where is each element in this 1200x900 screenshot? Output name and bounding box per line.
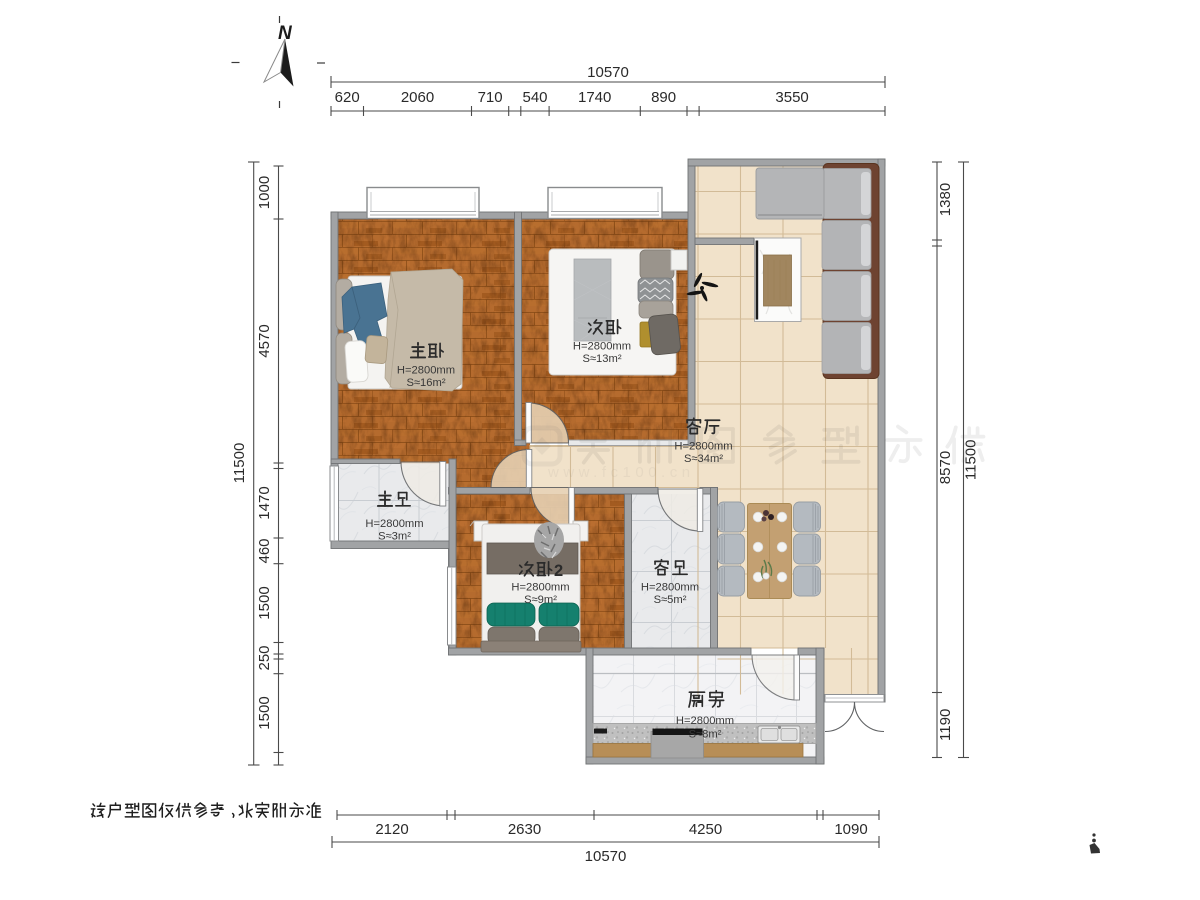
svg-text:www.fc100.cn: www.fc100.cn [547, 464, 695, 481]
svg-text:460: 460 [256, 538, 273, 563]
svg-text:8570: 8570 [937, 451, 954, 484]
svg-text:H=2800mm: H=2800mm [676, 715, 734, 727]
svg-text:S≈9m²: S≈9m² [524, 594, 557, 606]
svg-text:1090: 1090 [834, 821, 867, 838]
svg-text:S≈13m²: S≈13m² [582, 353, 621, 365]
svg-text:S≈16m²: S≈16m² [406, 377, 445, 389]
svg-text:H=2800mm: H=2800mm [397, 365, 455, 377]
svg-text:4250: 4250 [689, 821, 722, 838]
svg-text:S≈5m²: S≈5m² [654, 594, 687, 606]
svg-text:11500: 11500 [231, 443, 248, 484]
svg-text:540: 540 [522, 89, 547, 106]
svg-text:10570: 10570 [587, 64, 629, 81]
svg-text:3550: 3550 [775, 89, 808, 106]
svg-text:2: 2 [554, 562, 563, 580]
svg-text:2060: 2060 [401, 89, 434, 106]
svg-text:S≈3m²: S≈3m² [378, 531, 411, 543]
svg-text:11500: 11500 [963, 439, 980, 480]
svg-text:H=2800mm: H=2800mm [641, 582, 699, 594]
svg-text:4570: 4570 [256, 324, 273, 357]
svg-text:1380: 1380 [937, 183, 954, 216]
svg-text:1500: 1500 [256, 696, 273, 729]
svg-text:1500: 1500 [256, 586, 273, 619]
svg-text:890: 890 [651, 89, 676, 106]
svg-text:H=2800mm: H=2800mm [511, 582, 569, 594]
svg-text:1000: 1000 [256, 176, 273, 209]
svg-text:1470: 1470 [256, 486, 273, 519]
svg-text:S≈34m²: S≈34m² [684, 453, 723, 465]
svg-text:10570: 10570 [585, 848, 627, 865]
svg-text:710: 710 [478, 89, 503, 106]
svg-text:2120: 2120 [375, 821, 408, 838]
svg-text:2630: 2630 [508, 821, 541, 838]
svg-text:250: 250 [256, 645, 273, 670]
svg-text:1190: 1190 [937, 709, 954, 741]
svg-text:N: N [278, 23, 293, 44]
svg-text:S≈8m²: S≈8m² [689, 729, 722, 741]
svg-text:H=2800mm: H=2800mm [573, 341, 631, 353]
svg-text:H=2800mm: H=2800mm [674, 441, 732, 453]
svg-text:1740: 1740 [578, 89, 611, 106]
svg-text:H=2800mm: H=2800mm [365, 518, 423, 530]
svg-text:620: 620 [335, 89, 360, 106]
